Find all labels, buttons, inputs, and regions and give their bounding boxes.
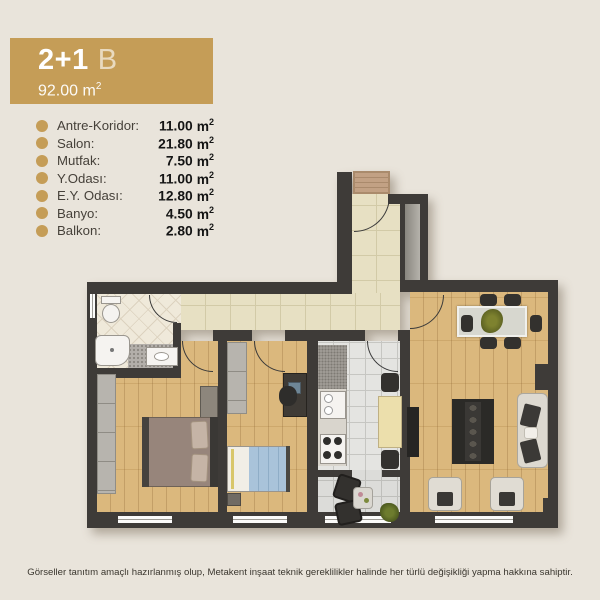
burner: [323, 437, 331, 445]
floor-plan-card: 2+1B 92.00 m2 Antre-Koridor:11.00m2 Salo…: [0, 0, 600, 600]
burner: [334, 451, 342, 459]
sink-basin: [154, 352, 169, 361]
wall: [337, 172, 352, 294]
bullet-icon: [36, 225, 48, 237]
kitchen-table: [378, 396, 402, 448]
wall-column: [535, 364, 548, 390]
plan-variant: B: [98, 44, 117, 76]
pillow: [190, 454, 208, 483]
doormat: [353, 171, 390, 194]
plan-total-area: 92.00 m2: [38, 76, 213, 101]
dining-chair: [530, 315, 542, 332]
wall: [420, 194, 428, 292]
flower: [358, 492, 363, 497]
wall-corner-block: [543, 498, 558, 528]
plant: [380, 503, 399, 522]
bullet-icon: [36, 190, 48, 202]
kitchen-counter-granite: [318, 345, 347, 389]
bullet-icon: [36, 155, 48, 167]
dining-chair: [504, 337, 521, 349]
desk-chair: [279, 386, 297, 406]
wall: [218, 341, 227, 512]
entry-closet: [405, 204, 420, 281]
tv-unit: [407, 407, 419, 457]
window: [435, 514, 513, 525]
bathroom-window: [88, 294, 97, 318]
disclaimer-text: Görseller tanıtım amaçlı hazırlanmış olu…: [0, 567, 600, 578]
rug-pattern: [465, 402, 481, 461]
shower-drain: [110, 348, 114, 352]
balcony-divider-wall: [382, 470, 400, 477]
wall: [285, 330, 365, 341]
bullet-icon: [36, 207, 48, 219]
kitchen-chair: [381, 373, 399, 392]
window: [233, 514, 287, 525]
blue-blanket: [249, 447, 287, 491]
bed-footboard: [142, 417, 149, 487]
sink-basin: [324, 406, 333, 415]
bed-edge: [286, 446, 290, 492]
burner: [323, 451, 331, 459]
dining-chair: [480, 337, 497, 349]
floor-plan: [80, 168, 562, 532]
plan-badge: 2+1B 92.00 m2: [10, 38, 213, 104]
burner: [334, 437, 342, 445]
wall: [87, 282, 352, 294]
bullet-icon: [36, 137, 48, 149]
armchair-cushion: [437, 492, 453, 506]
balcony-table: [353, 487, 373, 509]
bullet-icon: [36, 172, 48, 184]
bed-stripe: [231, 449, 234, 489]
dining-chair: [504, 294, 521, 306]
nightstand: [227, 493, 241, 506]
wall: [87, 282, 97, 528]
legend-row: Antre-Koridor:11.00m2: [36, 117, 214, 135]
window: [118, 514, 172, 525]
legend-row: Mutfak:7.50m2: [36, 152, 214, 170]
wall: [548, 292, 558, 528]
corridor-floor: [181, 293, 400, 330]
toilet-tank: [101, 296, 121, 304]
sink-basin: [324, 394, 333, 403]
toilet: [102, 304, 120, 323]
plan-type: 2+1: [38, 44, 89, 76]
kitchen-chair: [381, 450, 399, 469]
bed-headboard: [210, 417, 218, 487]
flower: [364, 498, 369, 503]
wall: [213, 330, 252, 341]
sofa-pillow: [524, 427, 538, 439]
wall: [400, 194, 405, 292]
dining-chair: [480, 294, 497, 306]
plan-type-title: 2+1B: [38, 45, 213, 76]
armchair-cushion: [499, 492, 515, 506]
legend-row: Salon:21.80m2: [36, 135, 214, 153]
wardrobe: [97, 374, 116, 494]
wardrobe: [227, 342, 247, 414]
bullet-icon: [36, 120, 48, 132]
wall: [307, 341, 318, 512]
dining-chair: [461, 315, 473, 332]
pillow: [190, 421, 208, 450]
